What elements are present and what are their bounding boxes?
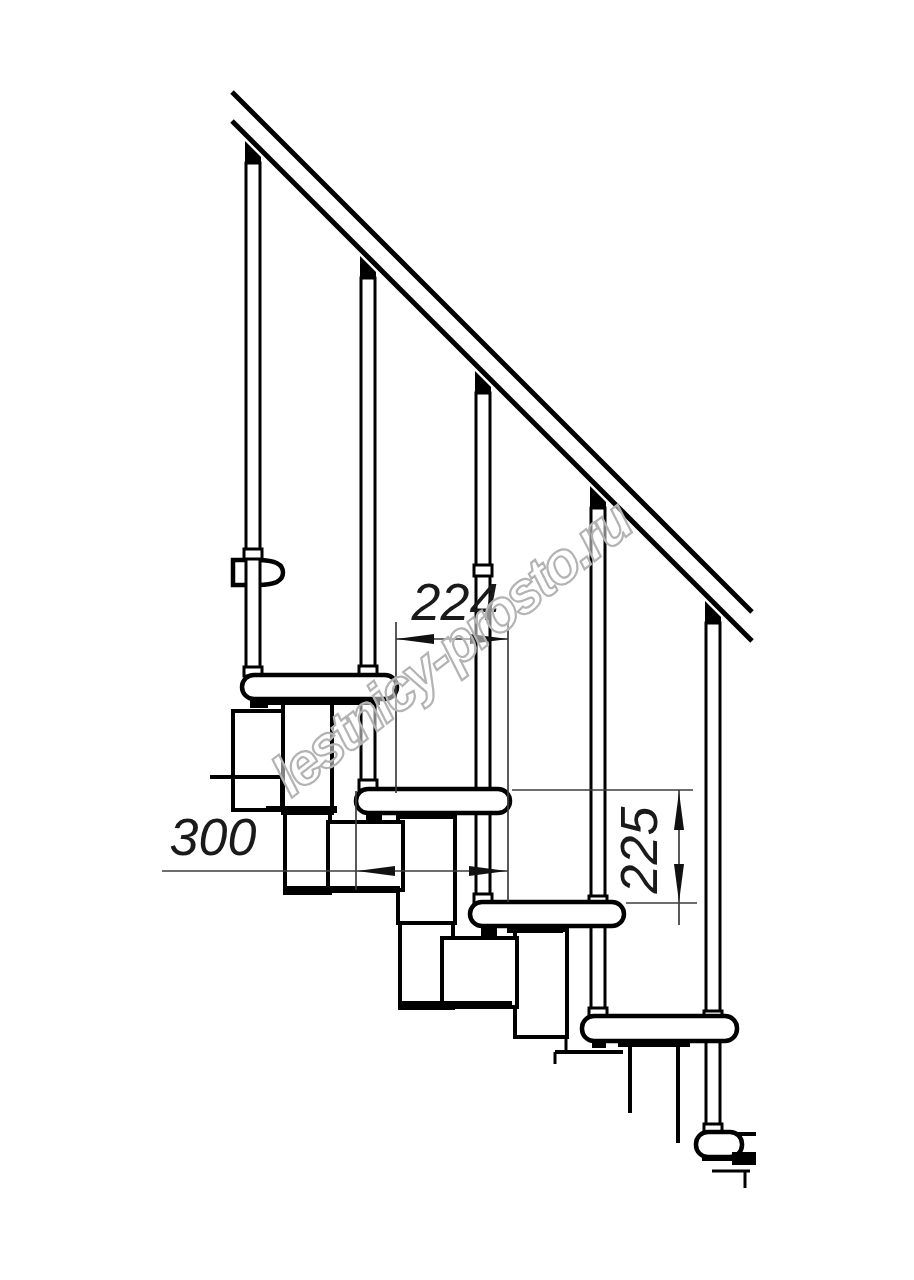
tread-1-tab: [250, 699, 268, 708]
tread-4-strip: [618, 1041, 690, 1047]
tread-2-tab: [366, 812, 382, 823]
baluster-post-5: [706, 623, 720, 1131]
module-1-lower-strip: [286, 886, 400, 893]
module-2-square: [328, 822, 403, 890]
module-3-column: [515, 930, 567, 1037]
handrail-top-edge: [232, 92, 752, 612]
baluster-1-joint-collar: [244, 549, 262, 559]
watermark-text: lestnicy-prosto.ru: [259, 487, 645, 808]
dim-225-arrow-up: [674, 792, 684, 830]
tread-4-tab: [592, 1042, 606, 1048]
module-2-column: [398, 817, 455, 923]
handrail-bottom-edge: [232, 121, 752, 641]
module-1-lower: [285, 813, 330, 893]
tread-3: [470, 902, 624, 926]
module-1-strip: [284, 806, 337, 813]
dim-225-label: 225: [610, 806, 668, 895]
drawing-canvas: 224 300 225 lestnicy-prosto.ru: [0, 0, 914, 1280]
dim-225-arrow-down: [674, 864, 684, 902]
tread-3-strip: [507, 927, 563, 933]
tread-2-strip: [398, 812, 455, 818]
tread-4: [582, 1016, 737, 1041]
bottom-plate-strip: [702, 1155, 732, 1161]
staircase-technical-drawing: 224 300 225 lestnicy-prosto.ru: [0, 0, 914, 1280]
dim-300-label: 300: [170, 808, 257, 866]
tread-3-tab: [481, 927, 497, 938]
baluster-post-4: [591, 508, 605, 1017]
handrail: [232, 92, 752, 641]
tread-2: [356, 789, 510, 813]
bottom-plate-block: [732, 1152, 756, 1165]
baluster-post-1: [246, 163, 260, 676]
module-3-square: [442, 938, 517, 1007]
module-2-lower-strip: [402, 1001, 512, 1008]
module-left-lower: [233, 777, 282, 810]
module-left-strip: [266, 806, 284, 812]
